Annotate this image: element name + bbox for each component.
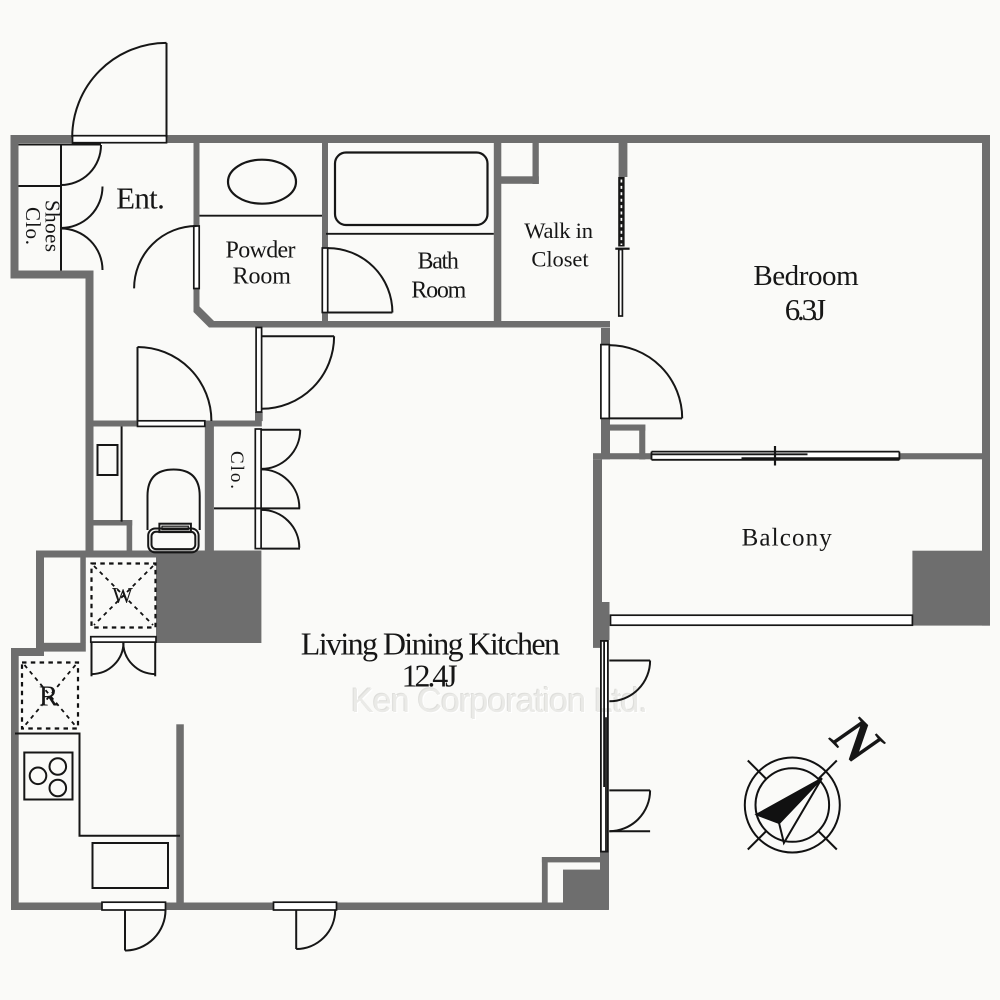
svg-text:Room: Room — [411, 277, 466, 303]
svg-text:Balcony: Balcony — [742, 525, 833, 552]
svg-text:Powder: Powder — [226, 238, 296, 264]
svg-text:Closet: Closet — [531, 247, 589, 272]
svg-text:12.4J: 12.4J — [402, 658, 458, 694]
svg-text:Bedroom: Bedroom — [753, 260, 859, 292]
svg-text:Walk in: Walk in — [524, 218, 593, 243]
svg-text:Ent.: Ent. — [116, 181, 165, 216]
svg-text:W: W — [112, 583, 133, 608]
svg-text:Bath: Bath — [418, 249, 459, 275]
svg-text:Room: Room — [233, 263, 292, 289]
svg-text:Living Dining Kitchen: Living Dining Kitchen — [301, 625, 560, 661]
svg-text:R: R — [39, 681, 59, 713]
svg-text:ShoesClo.: ShoesClo. — [21, 200, 65, 252]
svg-text:Clo.: Clo. — [226, 451, 247, 489]
svg-text:6.3J: 6.3J — [785, 292, 826, 327]
